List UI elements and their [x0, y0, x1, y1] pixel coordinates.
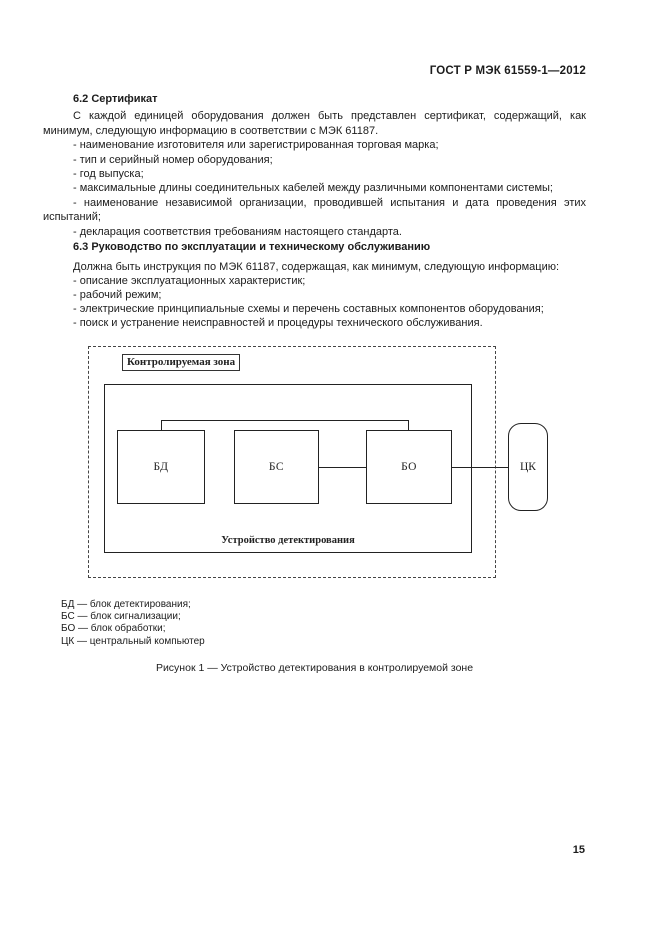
- section-6-2-paragraph: С каждой единицей оборудования должен бы…: [43, 109, 586, 138]
- list-item: - поиск и устранение неисправностей и пр…: [43, 316, 586, 330]
- figure-legend: БД — блок детектирования; БС — блок сигн…: [61, 599, 205, 648]
- section-6-3-heading: 6.3 Руководство по эксплуатации и технич…: [43, 240, 586, 254]
- block-bs: БС: [234, 430, 319, 504]
- legend-item: ЦК — центральный компьютер: [61, 636, 205, 648]
- document-page: ГОСТ Р МЭК 61559-1—2012 6.2 Сертификат С…: [0, 0, 661, 936]
- list-item: - наименование изготовителя или зарегист…: [43, 138, 586, 152]
- section-6-2-heading: 6.2 Сертификат: [43, 92, 586, 106]
- legend-item: БО — блок обработки;: [61, 623, 205, 635]
- detection-device-label: Устройство детектирования: [104, 535, 472, 546]
- list-item: - максимальные длины соединительных кабе…: [43, 181, 586, 195]
- block-bd: БД: [117, 430, 205, 504]
- controlled-zone-label: Контролируемая зона: [122, 354, 240, 371]
- list-item: - тип и серийный номер оборудования;: [43, 153, 586, 167]
- section-6-2: 6.2 Сертификат С каждой единицей оборудо…: [43, 92, 586, 239]
- figure-controlled-zone: Контролируемая зона БД БС БО ЦК Устройст…: [88, 346, 496, 578]
- list-item: - декларация соответствия требованиям на…: [43, 225, 586, 239]
- section-6-3-paragraph: Должна быть инструкция по МЭК 61187, сод…: [43, 260, 586, 274]
- list-item: - описание эксплуатационных характеристи…: [43, 274, 586, 288]
- section-6-3: 6.3 Руководство по эксплуатации и технич…: [43, 240, 586, 330]
- legend-item: БД — блок детектирования;: [61, 599, 205, 611]
- running-header-designation: ГОСТ Р МЭК 61559-1—2012: [430, 65, 586, 77]
- list-item: - электрические принципиальные схемы и п…: [43, 302, 586, 316]
- figure-caption: Рисунок 1 — Устройство детектирования в …: [43, 662, 586, 674]
- list-item: - год выпуска;: [43, 167, 586, 181]
- page-number: 15: [573, 844, 585, 856]
- legend-item: БС — блок сигнализации;: [61, 611, 205, 623]
- list-item: - рабочий режим;: [43, 288, 586, 302]
- block-ck: ЦК: [508, 423, 548, 511]
- block-bo: БО: [366, 430, 452, 504]
- list-item: - наименование независимой организации, …: [43, 196, 586, 225]
